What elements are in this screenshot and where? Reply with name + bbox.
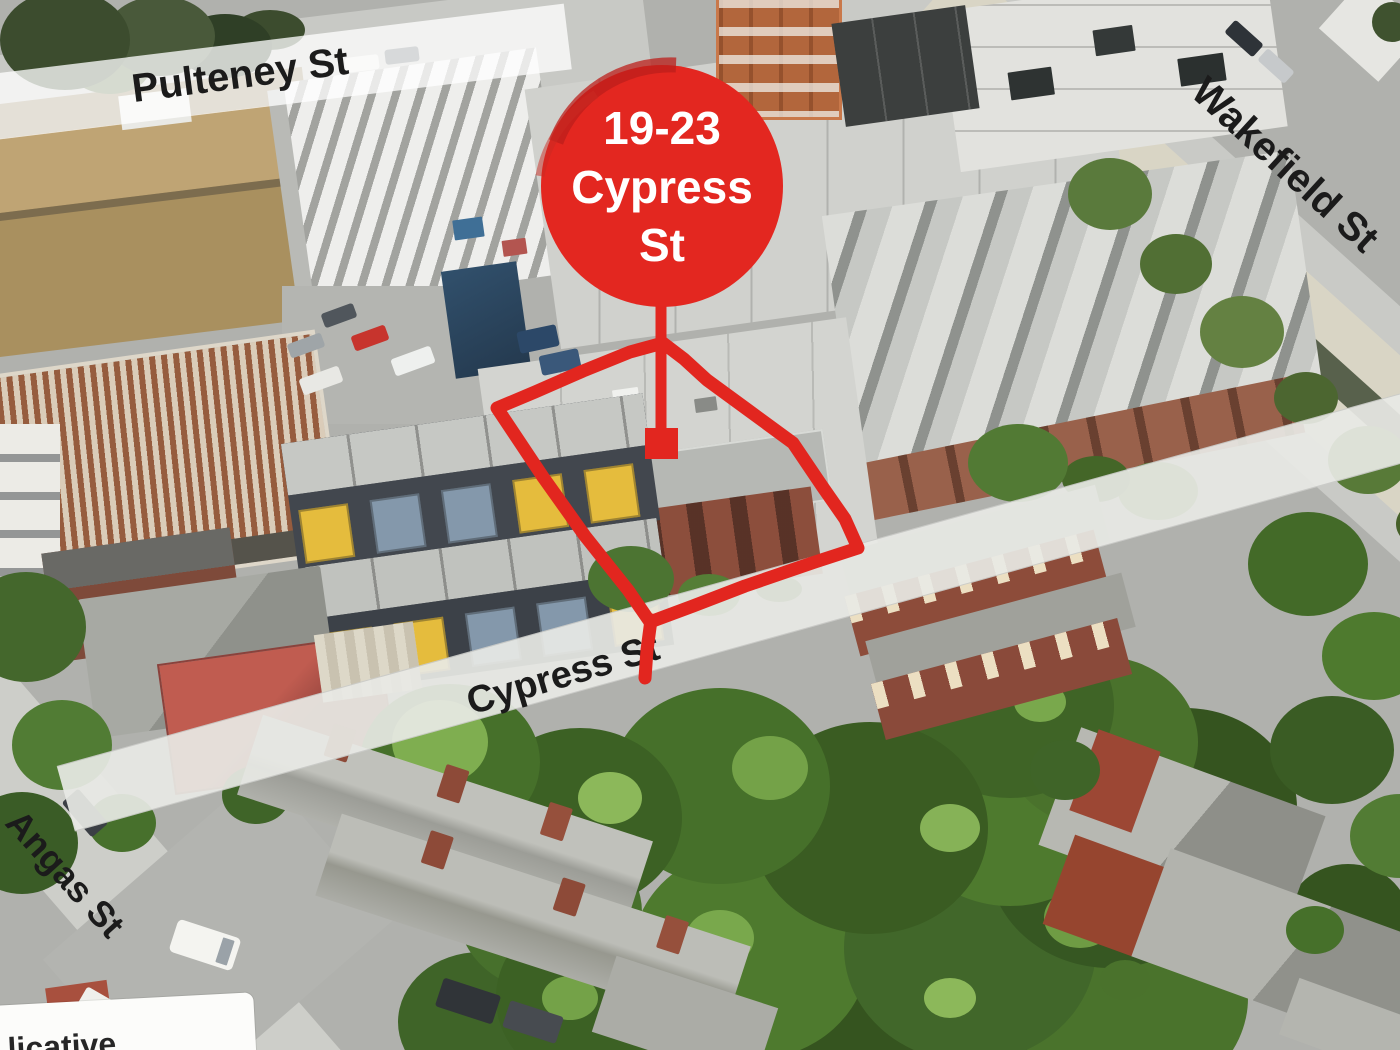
property-boundary-outline — [497, 343, 858, 622]
aerial-site-map: Pulteney St Wakefield St Cypress St Anga… — [0, 0, 1400, 1050]
watermark-text: licative — [7, 1025, 117, 1050]
balloon-address-label: 19-23 Cypress St — [542, 112, 782, 262]
balloon-line-2: Cypress — [542, 158, 782, 217]
boundary-tail — [645, 620, 651, 678]
balloon-line-3: St — [542, 216, 782, 275]
location-pin-square — [645, 428, 678, 459]
balloon-line-1: 19-23 — [542, 99, 782, 158]
